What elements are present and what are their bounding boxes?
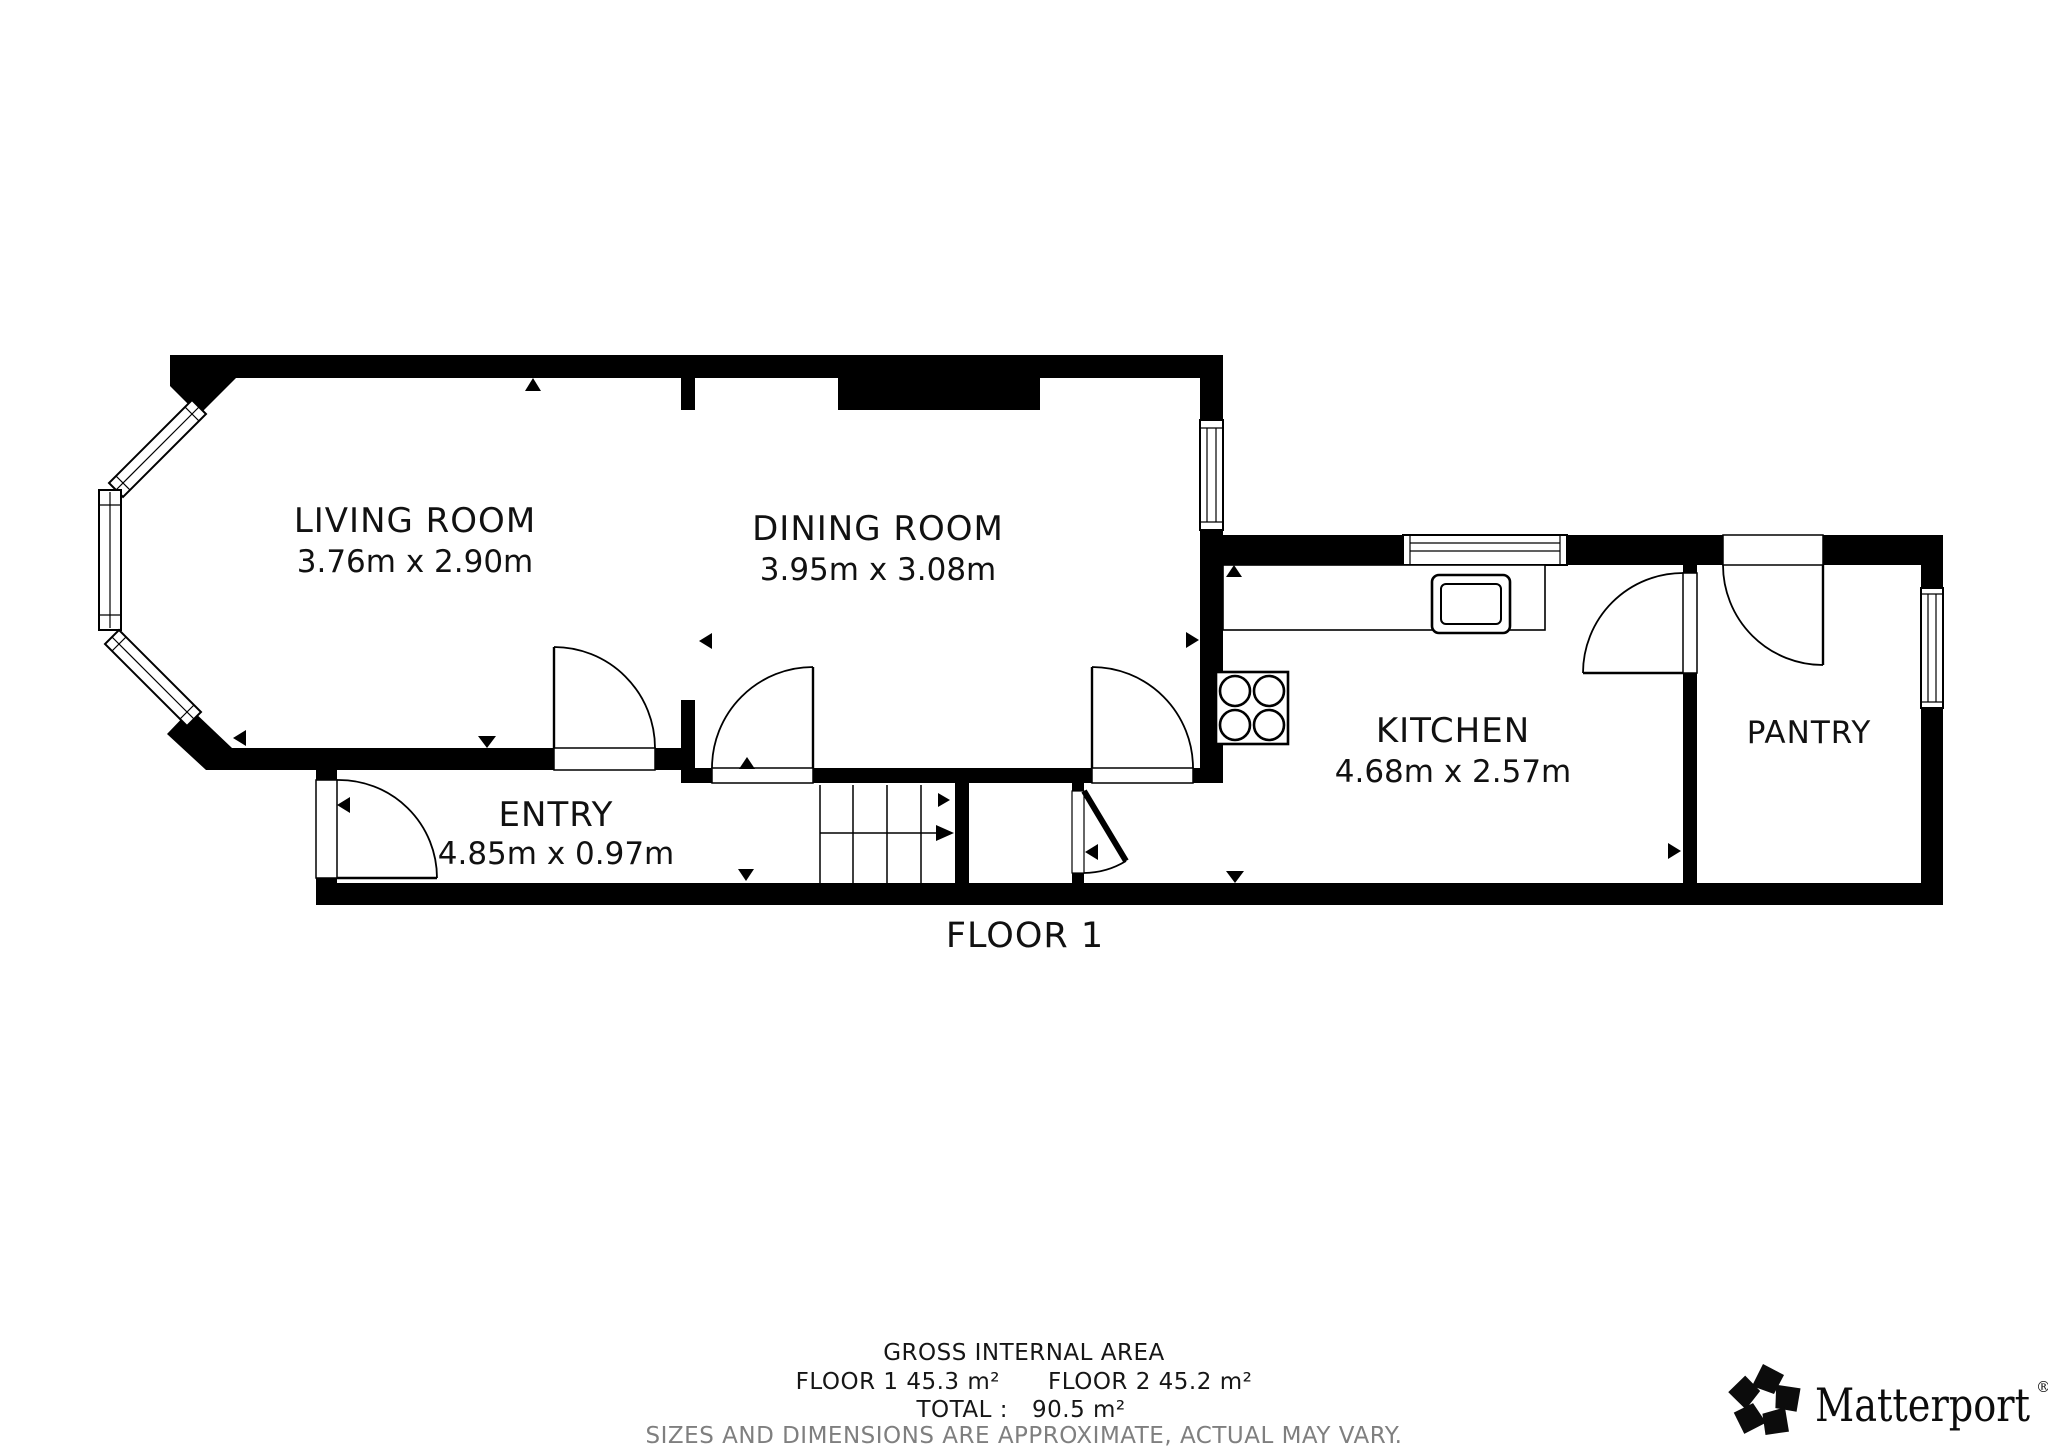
floor-label: FLOOR 1 — [946, 916, 1104, 956]
matterport-logo: Matterport ® — [1725, 1364, 2048, 1444]
floorplan-canvas: LIVING ROOM 3.76m x 2.90m DINING ROOM 3.… — [0, 0, 2048, 1448]
wall-kitchen-top-a — [1223, 535, 1403, 565]
door-dining-room-right — [1092, 667, 1193, 783]
floor1-area: FLOOR 1 45.3 m² — [796, 1369, 1000, 1395]
wall-top — [205, 355, 1223, 378]
wall-stub-entry-junction — [681, 700, 695, 783]
room-label-entry: ENTRY 4.85m x 0.97m — [438, 795, 675, 872]
walls — [167, 355, 1943, 905]
window-kitchen-top — [1403, 535, 1567, 565]
pantry-name: PANTRY — [1747, 715, 1872, 751]
wall-closet-right-top — [1072, 783, 1084, 791]
marker-stairs — [938, 793, 950, 807]
door-understairs-closet — [1072, 791, 1126, 873]
kitchen-name: KITCHEN — [1376, 711, 1530, 751]
door-kitchen-pantry — [1583, 573, 1697, 673]
matterport-pinwheel-icon — [1725, 1364, 1807, 1444]
footer-area-summary: GROSS INTERNAL AREA FLOOR 1 45.3 m² FLOO… — [646, 1340, 1403, 1448]
marker-up-icon — [525, 378, 541, 391]
marker-down-icon — [738, 869, 754, 881]
wall-kitchen-pantry-lower — [1683, 673, 1697, 883]
total-area-value: 90.5 m² — [1032, 1397, 1126, 1423]
floorplan-page: LIVING ROOM 3.76m x 2.90m DINING ROOM 3.… — [0, 0, 2048, 1448]
entry-dimensions: 4.85m x 0.97m — [438, 836, 675, 872]
total-area-label: TOTAL : — [915, 1397, 1008, 1423]
marker-up-icon — [739, 757, 755, 769]
registered-trademark-icon: ® — [2036, 1378, 2048, 1396]
door-living-room — [554, 647, 655, 770]
room-label-dining-room: DINING ROOM 3.95m x 3.08m — [752, 509, 1004, 588]
wall-chimney-breast — [838, 378, 1040, 410]
wall-entry-left-top — [316, 770, 337, 780]
window-dining-right — [1200, 420, 1223, 530]
matterport-wordmark: Matterport — [1815, 1378, 2030, 1432]
wall-dining-bottom-a — [695, 768, 712, 783]
gross-internal-area-heading: GROSS INTERNAL AREA — [883, 1340, 1165, 1366]
wall-right-outer-upper — [1921, 535, 1943, 588]
marker-down-icon — [1226, 871, 1244, 883]
dining-room-name: DINING ROOM — [752, 509, 1004, 549]
wall-kitchen-top-b — [1567, 535, 1723, 565]
entry-name: ENTRY — [499, 795, 614, 835]
room-label-pantry: PANTRY — [1747, 715, 1872, 751]
bay-window-pane-lower-midline — [112, 637, 194, 719]
wall-dining-bottom-b — [813, 768, 1092, 783]
wall-stub-living-dining — [681, 378, 695, 410]
room-label-living-room: LIVING ROOM 3.76m x 2.90m — [294, 501, 536, 580]
wall-bottom — [316, 883, 1943, 905]
room-label-kitchen: KITCHEN 4.68m x 2.57m — [1335, 711, 1572, 790]
bay-window-pane-upper-midline — [116, 407, 199, 490]
bay-window — [99, 400, 206, 726]
wall-bay-corner-top — [170, 355, 236, 415]
kitchen-dimensions: 4.68m x 2.57m — [1335, 754, 1572, 790]
wall-right-outer-lower — [1921, 708, 1943, 905]
wall-living-bottom-right — [655, 748, 681, 770]
door-pantry-top — [1723, 535, 1823, 665]
marker-left-icon — [1085, 844, 1098, 860]
sink-icon — [1432, 575, 1510, 633]
living-room-dimensions: 3.76m x 2.90m — [297, 544, 534, 580]
marker-left-icon — [699, 633, 712, 649]
wall-closet-right-bottom — [1072, 873, 1084, 885]
floor2-area: FLOOR 2 45.2 m² — [1048, 1369, 1252, 1395]
wall-kitchen-pantry-upper — [1683, 535, 1697, 573]
marker-right-icon — [1668, 843, 1681, 859]
marker-left-icon — [337, 797, 350, 813]
stair-up-arrow-icon — [936, 825, 954, 841]
wall-dining-right-upper — [1200, 378, 1223, 420]
wall-stairs-right — [955, 783, 969, 883]
staircase — [820, 785, 954, 883]
disclaimer-text: SIZES AND DIMENSIONS ARE APPROXIMATE, AC… — [646, 1423, 1403, 1448]
dining-room-dimensions: 3.95m x 3.08m — [760, 552, 997, 588]
marker-down-icon — [478, 736, 496, 748]
marker-right-icon — [1186, 632, 1199, 648]
wall-pantry-top — [1823, 535, 1921, 565]
door-front-entry — [316, 780, 437, 878]
stove-hob-icon — [1216, 672, 1288, 744]
door-dining-room-left — [712, 667, 813, 783]
living-room-name: LIVING ROOM — [294, 501, 536, 541]
wall-living-bottom-left — [206, 748, 554, 770]
marker-left-icon — [233, 730, 246, 746]
window-pantry-right — [1921, 588, 1943, 708]
wall-dining-right-foot — [1193, 768, 1223, 783]
